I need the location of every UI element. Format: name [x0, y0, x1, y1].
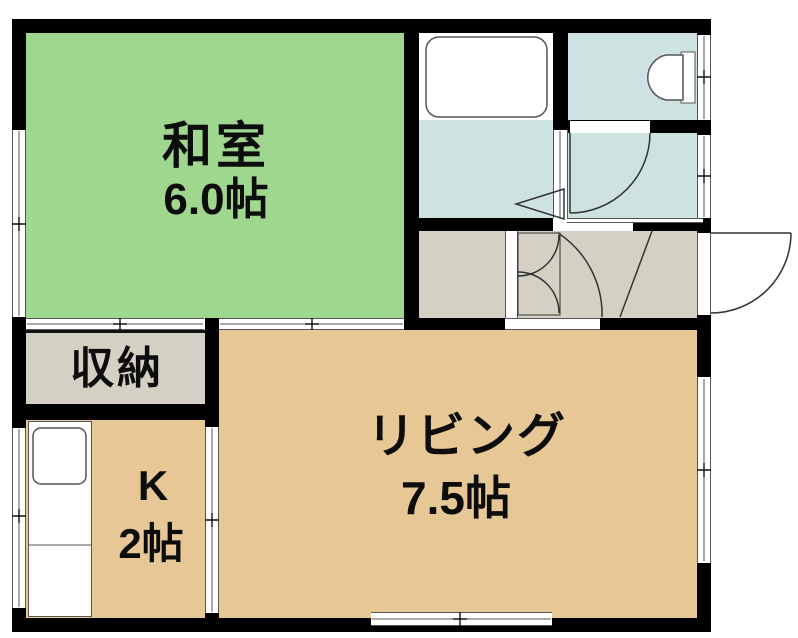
storage-label: 収納	[70, 347, 164, 391]
toilet-door-opening	[570, 121, 650, 133]
window-washroom-right	[697, 135, 711, 218]
window-toilet-right	[697, 35, 711, 120]
wall-left-upper	[12, 19, 26, 130]
entrance-door-opening	[697, 233, 711, 315]
room-washroom	[568, 133, 697, 218]
room-toilet	[568, 33, 697, 120]
kitchen-label: K	[138, 465, 168, 507]
bath-door-opening	[553, 130, 568, 218]
room-hallway	[419, 231, 697, 318]
wall-bath-toilet	[553, 33, 568, 120]
wall-right-5	[697, 563, 711, 632]
wall-top	[12, 19, 711, 33]
wall-right-1	[697, 19, 711, 35]
living-size: 7.5帖	[401, 475, 511, 521]
sliding-door-kitchen-living	[205, 427, 219, 613]
hall-living-opening	[505, 318, 600, 330]
washroom-threshold	[567, 218, 703, 223]
kitchen-size: 2帖	[118, 523, 183, 565]
fusuma-living	[219, 318, 404, 330]
wall-kitchen-partition-bottom	[205, 612, 219, 620]
kitchen-counter	[28, 421, 92, 617]
washitsu-size: 6.0帖	[163, 178, 268, 222]
living-label: リビング	[367, 413, 567, 461]
window-living-bottom	[371, 612, 552, 626]
wall-bottom	[12, 618, 711, 632]
window-washitsu-left	[12, 130, 26, 317]
window-kitchen-left	[12, 428, 26, 608]
washitsu-label: 和室	[162, 121, 270, 171]
fusuma-storage	[26, 318, 204, 330]
floor-plan: 和室 6.0帖 収納 K 2帖 リビング 7.5帖	[0, 0, 798, 638]
entrance-door-swing	[711, 233, 791, 313]
window-living-right	[697, 377, 711, 563]
wall-storage-bottom	[12, 404, 219, 420]
wall-washitsu-right	[404, 33, 419, 330]
hall-divider-strip	[505, 231, 518, 318]
bathtub-deck	[419, 33, 553, 120]
